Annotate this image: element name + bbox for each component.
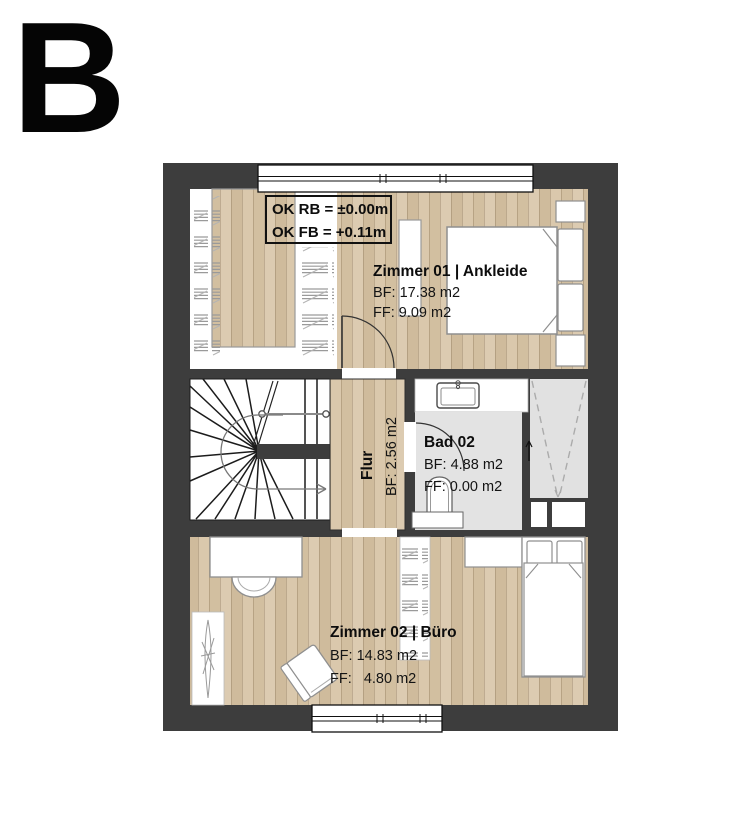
bed2-mattress xyxy=(524,563,583,676)
flur-name: Flur xyxy=(359,451,376,480)
bed1-mattress xyxy=(447,227,557,334)
bed2-pillow-2 xyxy=(557,541,582,565)
bed1-pillow-2 xyxy=(558,284,583,331)
annotation-line1: OK RB = ±0.00m xyxy=(272,201,388,218)
plant xyxy=(192,612,224,705)
floorplan-drawing: B OK RB = ±0.00m xyxy=(0,0,730,829)
door2-opening xyxy=(342,528,397,538)
floorplan: OK RB = ±0.00m OK FB = +0.11m Zimmer 01 … xyxy=(163,163,618,732)
zimmer02-name: Zimmer 02 | Büro xyxy=(330,624,457,641)
room-flur: Flur BF: 2.56 m2 xyxy=(330,379,405,530)
sink-basin xyxy=(437,383,479,408)
bed-zimmer02 xyxy=(522,537,585,677)
slope-area xyxy=(530,379,588,498)
flur-bf: BF: 2.56 m2 xyxy=(384,417,400,496)
bad02-ff: FF: 0.00 m2 xyxy=(424,479,502,495)
wardrobe-left xyxy=(194,196,220,364)
roof-slope-zone xyxy=(530,379,588,498)
handrail-post-left xyxy=(259,411,265,417)
bad-door-opening xyxy=(404,422,416,472)
room-bad02: Bad 02 BF: 4.88 m2 FF: 0.00 m2 xyxy=(404,379,588,530)
zimmer01-bf: BF: 17.38 m2 xyxy=(373,285,460,301)
zimmer01-ff: FF: 9.09 m2 xyxy=(373,305,451,321)
zimmer01-name: Zimmer 01 | Ankleide xyxy=(373,263,528,280)
bad02-bf: BF: 4.88 m2 xyxy=(424,457,503,473)
bed2-pillow-1 xyxy=(527,541,552,565)
stair-spine-wall xyxy=(257,444,330,459)
handrail-post-right xyxy=(323,411,329,417)
toilet-cabinet xyxy=(412,512,463,528)
nightstand-bottom xyxy=(556,335,585,366)
window-top xyxy=(258,165,533,192)
dresser xyxy=(465,537,522,567)
nightstand-top xyxy=(556,201,585,222)
staircase xyxy=(190,379,330,520)
wall-shaft-small xyxy=(531,502,547,527)
annotation-line2: OK FB = +0.11m xyxy=(272,224,386,241)
zimmer02-bf: BF: 14.83 m2 xyxy=(330,648,417,664)
window-bottom xyxy=(312,705,442,732)
desk xyxy=(210,537,302,577)
room-zimmer01: OK RB = ±0.00m OK FB = +0.11m Zimmer 01 … xyxy=(190,189,588,369)
variant-letter: B xyxy=(12,0,126,166)
bed1-pillow-1 xyxy=(558,229,583,281)
wall-shaft-large xyxy=(552,502,585,527)
bad02-name: Bad 02 xyxy=(424,434,475,451)
floorplan-page: B OK RB = ±0.00m xyxy=(0,0,730,829)
wardrobe-right xyxy=(301,247,334,365)
sink xyxy=(437,381,479,408)
door1-opening xyxy=(342,368,396,380)
wardrobe-zimmer02 xyxy=(400,537,430,660)
zimmer02-ff: FF: 4.80 m2 xyxy=(330,671,416,687)
room-zimmer02: Zimmer 02 | Büro BF: 14.83 m2 FF: 4.80 m… xyxy=(190,537,588,705)
